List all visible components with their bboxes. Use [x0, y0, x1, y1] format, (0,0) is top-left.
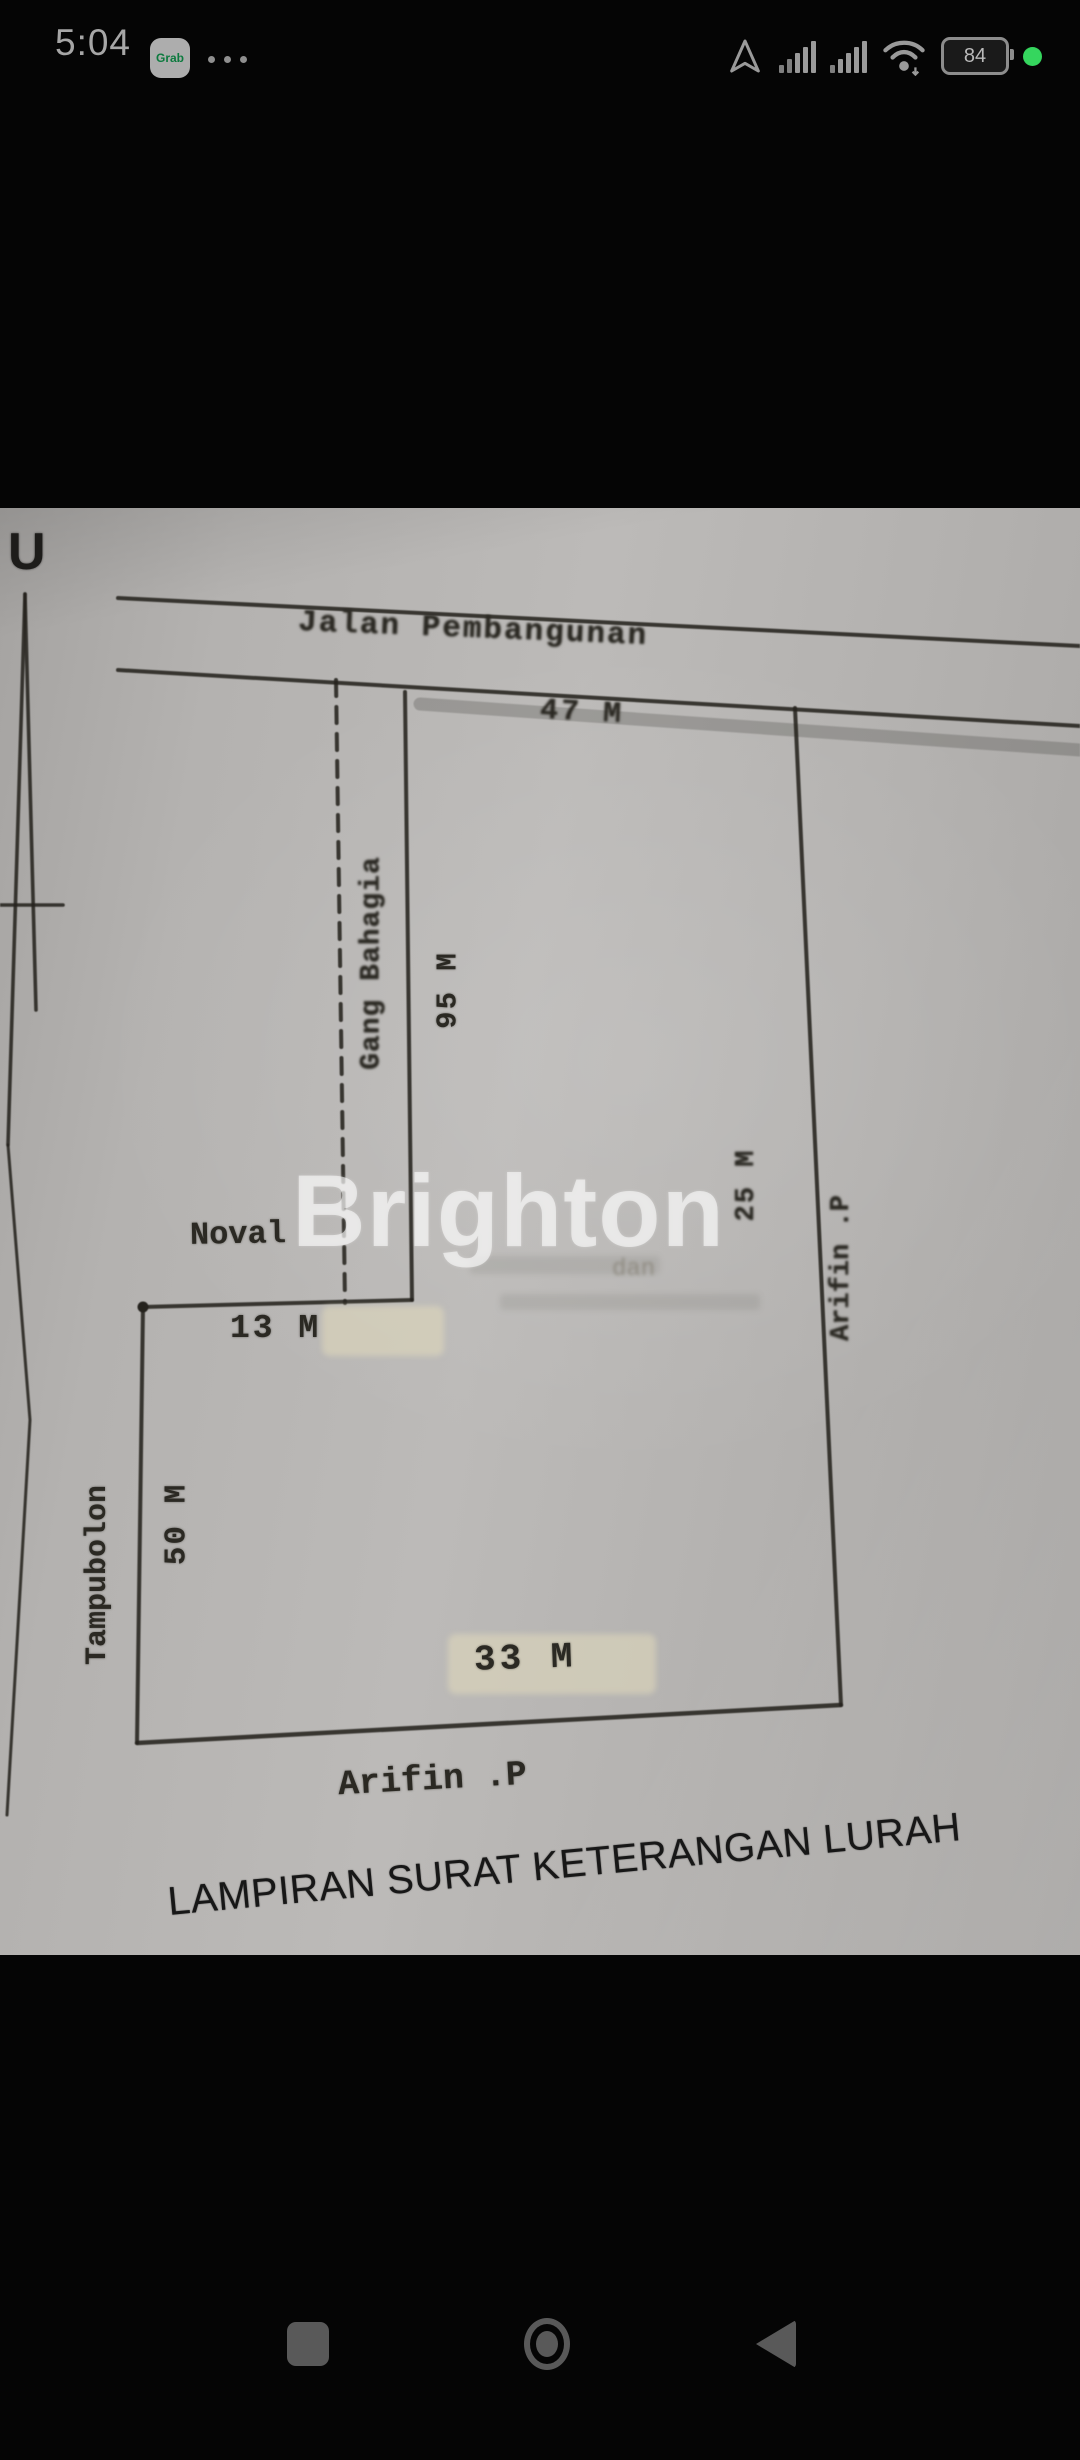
wifi-icon: [881, 36, 927, 76]
neighbor-left-label: Tampubolon: [81, 1485, 115, 1665]
alley-name-label: Gang Bahagia: [357, 856, 388, 1070]
dimension-right-depth: 25 M: [732, 1149, 762, 1222]
cellular-signal-icon-sim2: [830, 39, 867, 73]
dimension-alley-depth: 95 M: [432, 951, 465, 1029]
location-arrow-icon: [725, 36, 765, 76]
recents-button-icon[interactable]: [287, 2322, 329, 2366]
clock: 5:04: [55, 22, 131, 64]
neighbor-noval-label: Noval: [190, 1215, 287, 1254]
dimension-noval-front: 13 M: [230, 1310, 321, 1347]
bleed-line-smudge: [500, 1294, 760, 1310]
north-indicator-label: U: [8, 522, 46, 582]
battery-percent: 84: [964, 45, 986, 68]
dimension-road-front: 47 M: [539, 694, 625, 732]
phone-screen: 5:04 Grab 84: [0, 0, 1080, 2460]
battery-icon: 84: [941, 37, 1009, 75]
notification-overflow-dots-icon: [208, 56, 247, 63]
green-status-dot-icon: [1023, 47, 1042, 66]
grab-logo-text: Grab: [156, 51, 184, 65]
back-button-icon[interactable]: [756, 2320, 796, 2368]
status-icons: 84: [725, 30, 1042, 82]
neighbor-right-label: Arifin .P: [827, 1195, 857, 1341]
grab-notification-icon: Grab: [150, 38, 190, 78]
cellular-signal-icon-sim1: [779, 39, 816, 73]
highlight-smudge-13m: [322, 1306, 444, 1356]
status-bar: 5:04 Grab 84: [0, 0, 1080, 100]
home-button-icon[interactable]: [524, 2318, 570, 2370]
dimension-bottom-width: 33 M: [473, 1636, 577, 1681]
dimension-left-depth: 50 M: [160, 1483, 195, 1565]
brighton-watermark: Brighton: [292, 1153, 725, 1270]
android-nav-bar: [0, 2280, 1080, 2460]
land-sketch-photo: dan Brighton U Jalan Pembangunan 47 M Ga…: [0, 508, 1080, 1955]
